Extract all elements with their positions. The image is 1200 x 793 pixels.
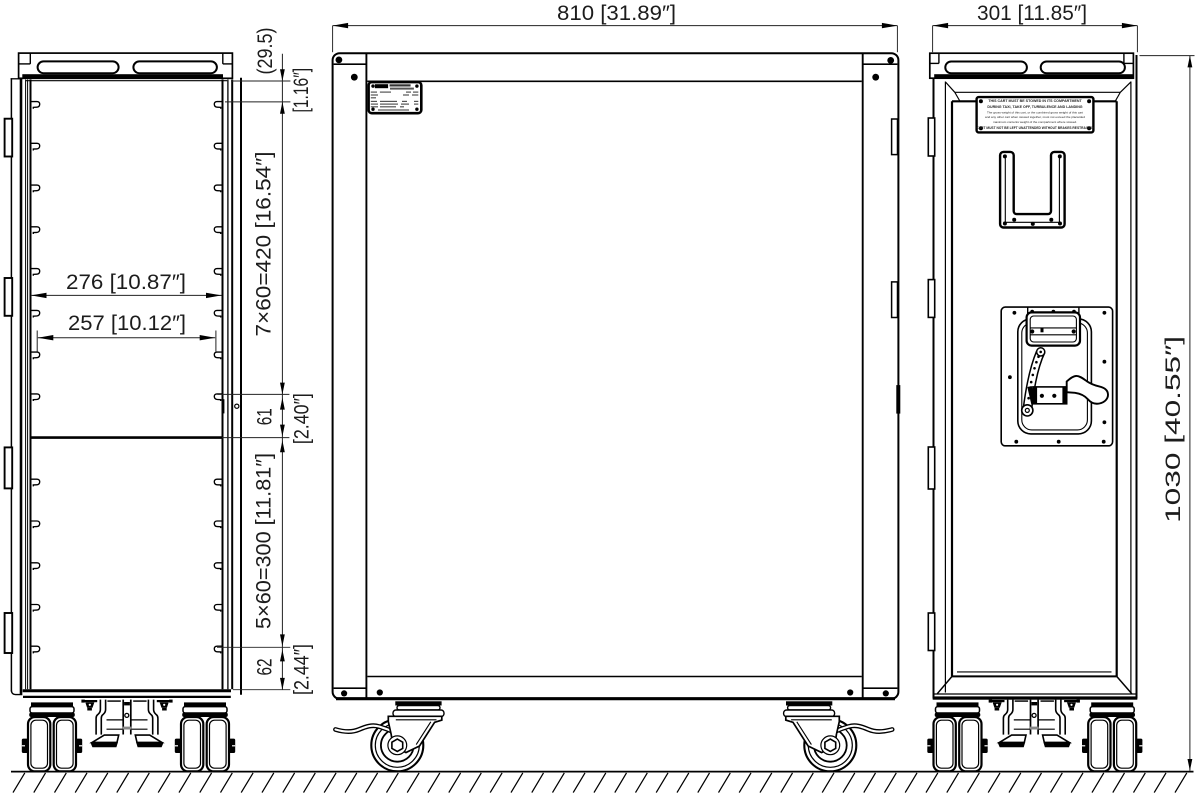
svg-text:257 [10.12″]: 257 [10.12″] [68, 311, 186, 335]
svg-text:7×60=420 [16.54″]: 7×60=420 [16.54″] [252, 152, 276, 337]
svg-text:maximum contents weight of the: maximum contents weight of the compartme… [993, 120, 1077, 124]
svg-text:and any other cart when stowed: and any other cart when stowed together,… [985, 115, 1085, 119]
svg-text:[2.40″]: [2.40″] [290, 393, 314, 444]
svg-text:[2.44″]: [2.44″] [290, 644, 314, 695]
svg-text:276 [10.87″]: 276 [10.87″] [66, 270, 186, 294]
svg-text:The gross weight of this cart,: The gross weight of this cart, or the co… [987, 111, 1083, 115]
svg-text:61: 61 [253, 408, 277, 425]
svg-text:1030 [40.55″]: 1030 [40.55″] [1161, 336, 1185, 523]
svg-text:THIS CART MUST BE STOWED IN IT: THIS CART MUST BE STOWED IN ITS COMPARTM… [988, 99, 1082, 103]
svg-text:62: 62 [253, 659, 277, 676]
svg-text:CART MUST NOT BE LEFT UNATTEND: CART MUST NOT BE LEFT UNATTENDED WITHOUT… [976, 126, 1094, 130]
svg-text:DURING TAXI, TAKE OFF, TURBULE: DURING TAXI, TAKE OFF, TURBULENCE AND LA… [987, 105, 1082, 109]
svg-text:(29.5): (29.5) [253, 28, 277, 75]
svg-text:810 [31.89″]: 810 [31.89″] [557, 1, 676, 25]
svg-text:[1.16″]: [1.16″] [289, 68, 313, 113]
svg-text:5×60=300 [11.81″]: 5×60=300 [11.81″] [252, 453, 276, 629]
svg-text:301 [11.85″]: 301 [11.85″] [977, 1, 1087, 25]
